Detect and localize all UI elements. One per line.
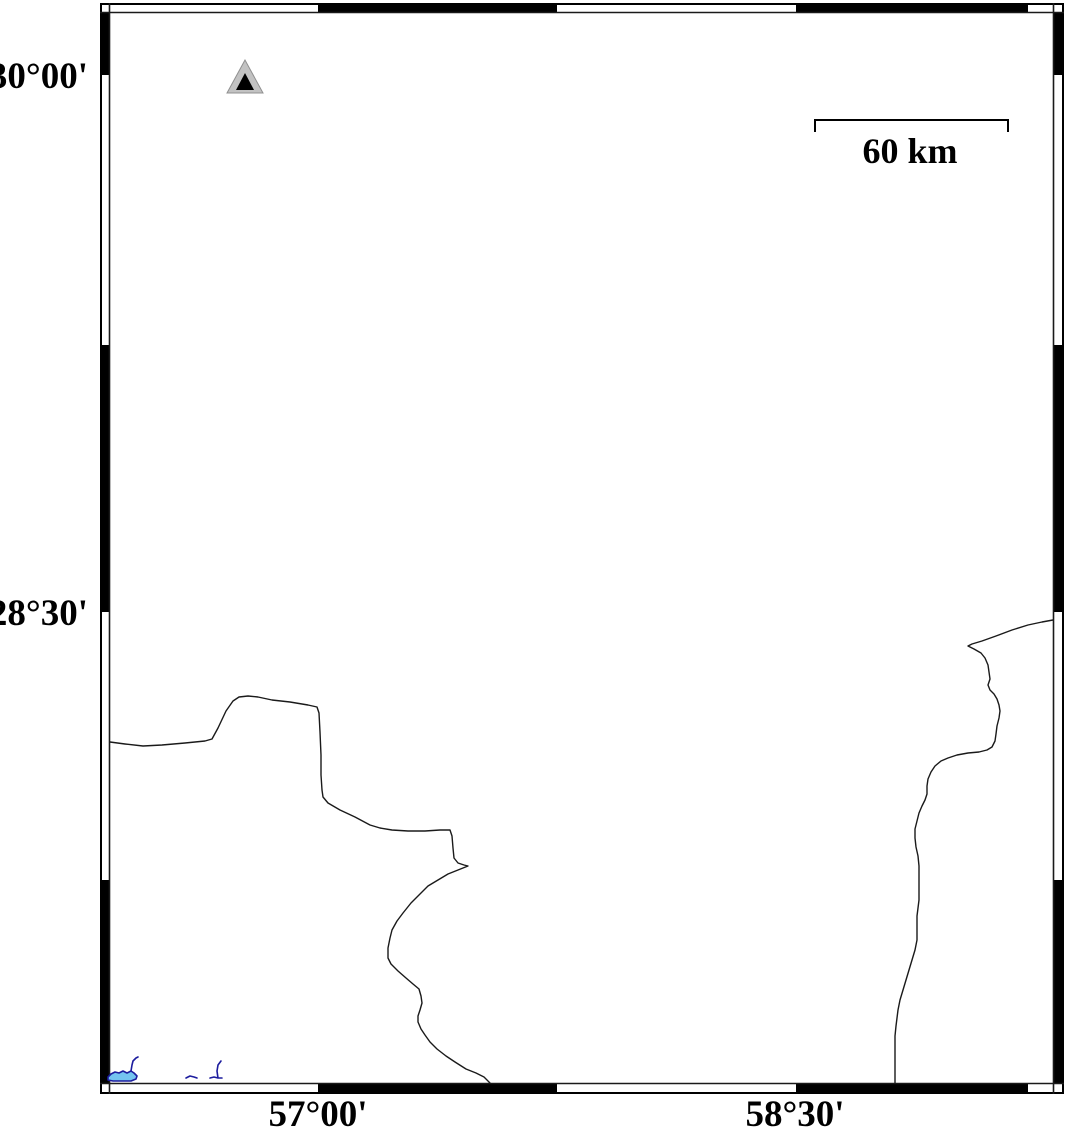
west-province-boundary-line <box>110 696 490 1083</box>
lon-label-57-00: 57°00' <box>268 1094 367 1131</box>
water-features <box>108 1057 222 1081</box>
frame-black-segment <box>1054 345 1063 612</box>
frame-black-segment <box>796 4 1028 13</box>
frame-black-segment <box>318 1084 557 1093</box>
lon-label-58-30: 58°30' <box>745 1094 844 1131</box>
frame-black-segment <box>101 345 110 612</box>
frame-black-segment <box>101 12 110 75</box>
frame-black-segment <box>101 880 110 1084</box>
frame-annotations: 30°00' 28°30' 57°00' 58°30' <box>0 56 845 1131</box>
river-line-west <box>131 1057 138 1071</box>
frame-black-segment <box>796 1084 1028 1093</box>
lake-polygon <box>108 1071 137 1081</box>
lat-label-30-00: 30°00' <box>0 56 88 97</box>
boundary-lines <box>110 620 1053 1083</box>
map-page: 30°00' 28°30' 57°00' 58°30' 60 km <box>0 0 1066 1131</box>
map-canvas: 30°00' 28°30' 57°00' 58°30' 60 km <box>0 0 1066 1131</box>
scale-bar-label: 60 km <box>862 131 957 171</box>
frame-right-segments <box>1054 12 1063 1084</box>
river-dash <box>186 1076 197 1078</box>
scale-bar: 60 km <box>815 120 1008 171</box>
lat-label-28-30: 28°30' <box>0 593 88 634</box>
frame-top-segments <box>318 4 1028 13</box>
triangle-station-marker <box>227 60 263 93</box>
east-province-boundary-line <box>895 620 1053 1083</box>
frame-left-segments <box>101 12 110 1084</box>
frame-black-segment <box>1054 12 1063 75</box>
frame-bottom-segments <box>318 1084 1028 1093</box>
river-line-east <box>210 1061 222 1078</box>
frame-black-segment <box>1054 880 1063 1084</box>
frame-black-segment <box>318 4 557 13</box>
